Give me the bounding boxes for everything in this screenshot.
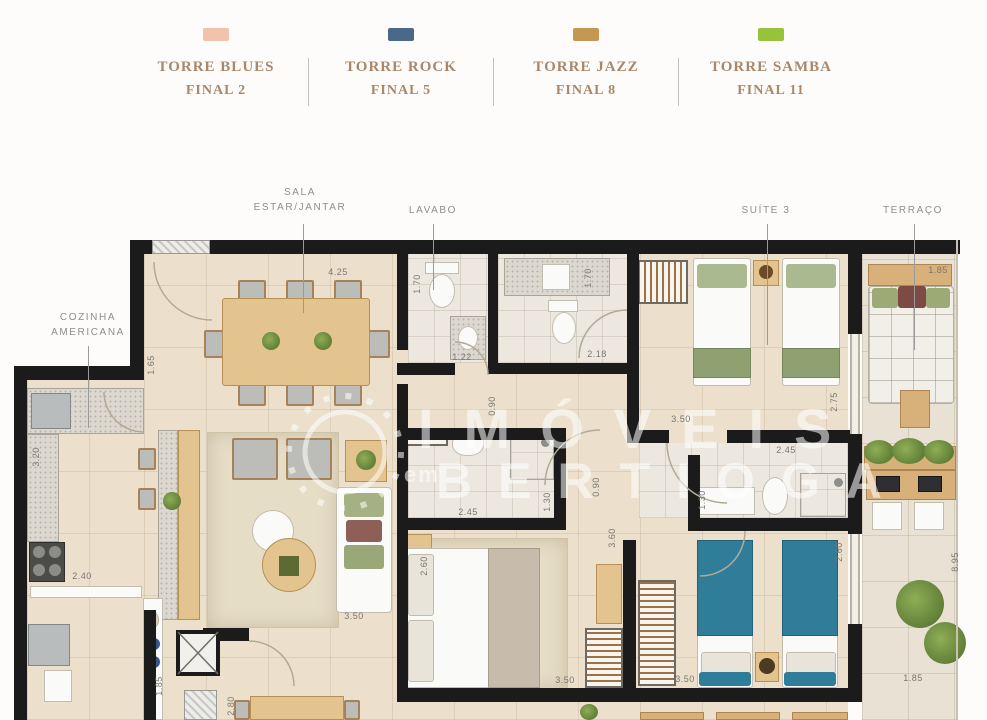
dimension-label: 2.80	[226, 696, 236, 716]
wall	[397, 384, 408, 428]
dimension-label: 1.85	[154, 676, 164, 696]
wall	[488, 363, 638, 374]
toilet-tank	[425, 262, 459, 274]
bed-blanket	[782, 348, 840, 378]
dimension-label: 2.45	[776, 445, 796, 455]
dimension-label: 0.90	[591, 477, 601, 497]
dimension-label: 2.40	[72, 571, 92, 581]
terrace-side-table	[900, 390, 930, 428]
floorplan-page: TORRE BLUES FINAL 2 TORRE ROCK FINAL 5 T…	[0, 0, 987, 720]
dimension-label: 3.50	[675, 674, 695, 684]
room-label-line2: ESTAR/JANTAR	[254, 200, 347, 215]
wall	[627, 254, 639, 430]
sofa-pillow	[346, 520, 382, 542]
wall	[848, 254, 862, 334]
terrace-tree	[896, 580, 944, 628]
table-bottom	[250, 696, 344, 720]
label-leader-line	[433, 224, 434, 290]
dimension-label: 2.18	[587, 349, 607, 359]
label-leader-line	[303, 224, 304, 313]
dining-chair	[238, 384, 266, 406]
planter-greenery	[924, 440, 954, 464]
bed-pillow	[701, 652, 751, 674]
terrace-boundary-line	[956, 240, 958, 720]
desk-chair	[914, 502, 944, 530]
bed-pillow	[786, 264, 836, 288]
room-label-line1: LAVABO	[409, 203, 457, 218]
bed-blanket	[693, 348, 751, 378]
bed-pillow	[408, 620, 434, 682]
armchair	[286, 438, 332, 480]
stove-burner	[49, 546, 61, 558]
entry-window-hatch	[152, 240, 210, 254]
bar-stool	[138, 448, 156, 470]
tall-cabinet	[596, 564, 622, 624]
dimension-label: 3.50	[671, 414, 691, 424]
dining-table	[222, 298, 370, 386]
wall	[14, 366, 27, 720]
room-label: TERRAÇO	[883, 203, 943, 218]
wardrobe	[585, 628, 623, 688]
washing-machine	[44, 670, 72, 702]
dimension-label: 4.25	[328, 267, 348, 277]
lounger-bottom	[792, 712, 848, 720]
dimension-label: 1.22	[452, 352, 472, 362]
chair-bottom	[234, 700, 250, 720]
dimension-label: 2.75	[829, 392, 839, 412]
room-label-line1: TERRAÇO	[883, 203, 943, 218]
room-label-line2: AMERICANA	[51, 325, 125, 340]
room-label: SALA ESTAR/JANTAR	[254, 185, 347, 215]
dining-chair	[286, 384, 314, 406]
dimension-label: 3.50	[344, 611, 364, 621]
dimension-label: 1.30	[697, 490, 707, 510]
shower-head	[834, 478, 843, 487]
laptop	[918, 476, 942, 492]
dimension-label: 2.60	[419, 556, 429, 576]
table-plant	[314, 332, 332, 350]
dimension-label: 2.60	[834, 542, 844, 562]
planter-greenery	[892, 438, 926, 464]
chair-bottom	[344, 700, 360, 720]
table-plant	[262, 332, 280, 350]
table-tray	[279, 556, 299, 576]
armchair	[232, 438, 278, 480]
lounger-bottom	[716, 712, 780, 720]
window	[850, 334, 860, 434]
daybed-pillow	[926, 288, 950, 308]
room-label: COZINHA AMERICANA	[51, 310, 125, 340]
dimension-label: 3.60	[607, 528, 617, 548]
dimension-label: 0.90	[487, 396, 497, 416]
wall	[130, 240, 960, 254]
dimension-label: 1.85	[928, 265, 948, 275]
room-label-line1: SALA	[254, 185, 347, 200]
kitchen-sink	[31, 393, 71, 429]
bed-blanket-teal	[782, 540, 838, 636]
sofa-pillow	[344, 545, 384, 569]
dining-chair	[334, 384, 362, 406]
wall	[397, 428, 566, 440]
wall	[397, 428, 408, 700]
elevator-shaft	[176, 630, 220, 676]
lounger-bottom	[640, 712, 704, 720]
wall	[144, 610, 156, 720]
room-label-line1: SUÍTE 3	[742, 203, 791, 218]
stove-burner	[33, 546, 45, 558]
wall	[848, 624, 862, 702]
dimension-label: 1.65	[146, 355, 156, 375]
bed-pillow	[786, 652, 836, 674]
desk-chair	[872, 502, 902, 530]
wardrobe	[638, 580, 676, 686]
bar-counter-wood	[178, 430, 200, 620]
dimension-label: 1.30	[542, 492, 552, 512]
wall	[397, 254, 408, 350]
wall	[700, 518, 855, 531]
laptop	[876, 476, 900, 492]
wall	[130, 240, 144, 380]
wall	[488, 254, 498, 363]
dimension-label: 2.45	[458, 507, 478, 517]
stove-burner	[33, 564, 45, 576]
floor-plan: IMÓVEIS em BERTIOGA SALA ESTAR/JANTAR LA…	[0, 0, 987, 720]
dimension-label: 8.95	[950, 552, 960, 572]
dimension-label: 1.70	[412, 274, 422, 294]
bar-counter	[158, 430, 178, 620]
plant-bottom	[580, 704, 598, 720]
wall	[397, 688, 855, 702]
dimension-label: 3.50	[555, 675, 575, 685]
dimension-label: 3.20	[31, 447, 41, 467]
room-label: LAVABO	[409, 203, 457, 218]
bed-footroll	[784, 672, 836, 686]
toilet	[552, 312, 576, 344]
wall	[14, 366, 144, 380]
stove-burner	[49, 564, 61, 576]
toilet-tank	[548, 300, 578, 312]
shaft-hatch	[184, 690, 217, 720]
bathroom-sink	[542, 264, 570, 290]
sofa-pillow	[344, 493, 384, 517]
bed-footroll	[699, 672, 751, 686]
daybed-pillow	[872, 288, 898, 308]
side-table-plant	[356, 450, 376, 470]
wardrobe	[632, 260, 688, 304]
label-leader-line	[88, 346, 89, 428]
dimension-label: 1.85	[903, 673, 923, 683]
laundry-tank	[28, 624, 70, 666]
dimension-label: 1.70	[583, 268, 593, 288]
wall	[397, 363, 455, 375]
wall	[623, 540, 636, 690]
room-label: SUÍTE 3	[742, 203, 791, 218]
toilet	[762, 477, 788, 515]
wall	[627, 430, 669, 443]
wall	[397, 518, 566, 530]
terrace-tree	[924, 622, 966, 664]
nightstand-lamp	[759, 265, 773, 279]
label-leader-line	[914, 224, 915, 350]
wall	[727, 430, 855, 443]
window	[850, 534, 860, 624]
dining-chair	[368, 330, 390, 358]
bed-pillow	[697, 264, 747, 288]
bar-stool	[138, 488, 156, 510]
wall	[848, 434, 862, 534]
label-leader-line	[767, 224, 768, 345]
nightstand-rug	[759, 658, 775, 674]
bed-blanket-teal	[697, 540, 753, 636]
bar-plant	[163, 492, 181, 510]
kitchen-pass-counter	[30, 586, 142, 598]
lavabo-sink	[458, 326, 478, 350]
bed-throw	[488, 548, 540, 688]
wall	[554, 428, 566, 530]
room-label-line1: COZINHA	[51, 310, 125, 325]
daybed-pillow	[898, 286, 926, 308]
planter-greenery	[864, 440, 894, 464]
